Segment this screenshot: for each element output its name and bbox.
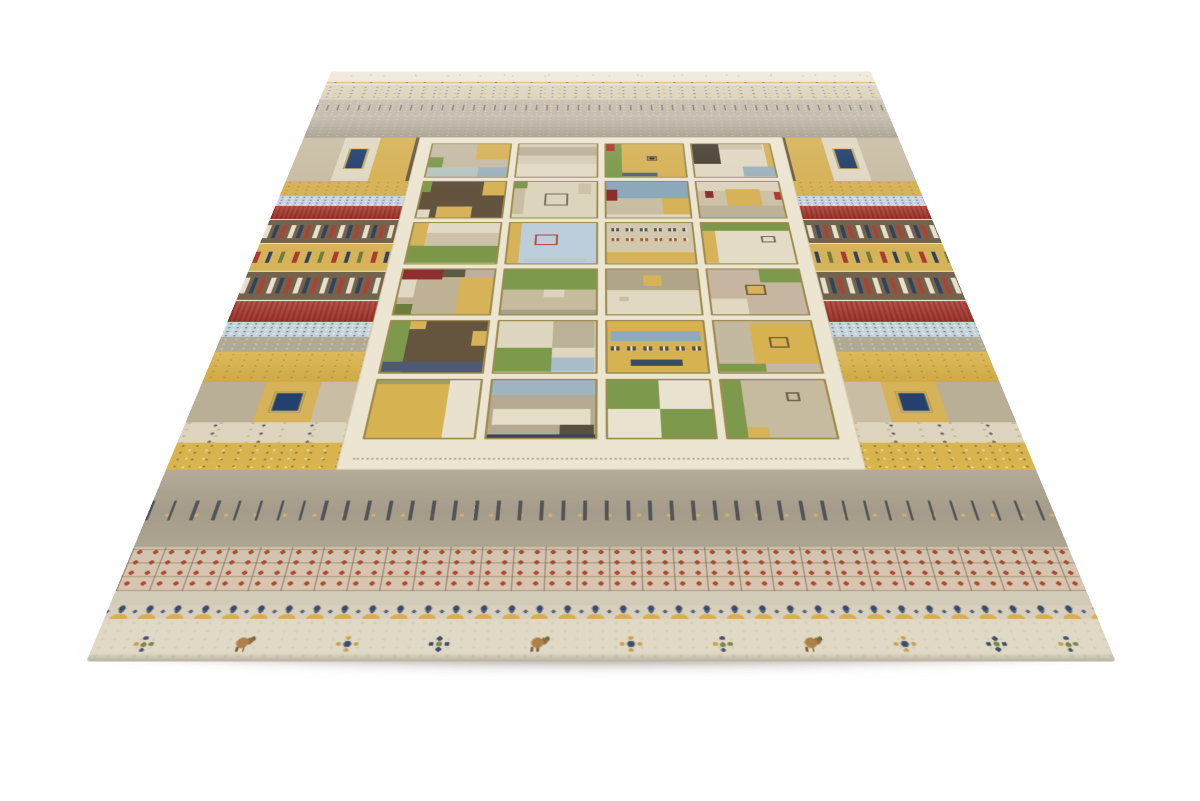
patch (700, 206, 786, 218)
patch (435, 206, 472, 217)
patch (607, 409, 661, 438)
patch (719, 363, 767, 371)
kilim-square-motif (896, 391, 933, 412)
rug-grid-cell (700, 222, 799, 264)
patch (402, 269, 444, 279)
patch (406, 246, 498, 263)
patch (606, 214, 691, 217)
patch (718, 144, 762, 150)
patch (607, 380, 660, 409)
rug-grid-cell (509, 181, 598, 219)
patch (785, 392, 801, 401)
patch (516, 164, 596, 177)
patch (578, 184, 591, 194)
patch (500, 310, 595, 315)
patch (725, 189, 763, 205)
rug-grid-cell (705, 268, 810, 315)
rug-band-light-plain (110, 591, 1093, 605)
rug-grid-cell (484, 378, 597, 439)
rug-grid-cell (498, 268, 597, 315)
patch (486, 434, 594, 438)
patch (428, 157, 444, 167)
patch (544, 193, 568, 205)
diamond-motif (334, 636, 360, 651)
kilim-square-motif (832, 148, 859, 169)
rug-grid-cell (424, 143, 512, 177)
rug-grid-cell (403, 222, 502, 264)
patch (606, 252, 696, 263)
patch (631, 359, 683, 365)
patch (410, 321, 427, 329)
rug-band-gray-fade (304, 115, 898, 138)
cross-motif (426, 636, 451, 651)
patch (514, 182, 528, 189)
patch (524, 258, 587, 262)
patch (416, 209, 430, 217)
diamond-motif (620, 636, 643, 651)
patch (650, 157, 655, 159)
patch (611, 331, 701, 341)
patch (455, 277, 494, 314)
rug-grid-cell (690, 143, 778, 177)
rug-band-beige-dots (320, 85, 883, 100)
patch (482, 182, 505, 196)
patch (512, 189, 526, 214)
rug-grid-cell (362, 378, 483, 439)
patch (606, 190, 618, 201)
patch (534, 235, 557, 245)
rug-grid-cell (712, 320, 824, 373)
patch (611, 226, 687, 233)
patch (769, 337, 791, 348)
plant-motif (1053, 636, 1082, 651)
patch (773, 192, 781, 200)
rug-band-flower-row (104, 605, 1098, 619)
product-photo-scene (0, 0, 1200, 801)
patch (543, 289, 564, 297)
rug-grid-cell (695, 181, 788, 219)
patch (471, 331, 487, 346)
patch (704, 191, 713, 197)
rug-band-bottom-cream (86, 619, 1115, 662)
rug-band-gray-dash (313, 100, 889, 115)
patch (643, 275, 662, 286)
rug-grid-cell (604, 181, 693, 219)
patch (660, 409, 716, 438)
rug-grid-cell (604, 222, 698, 264)
patch (606, 182, 689, 199)
rug-grid-cell (414, 181, 507, 219)
patch (662, 198, 690, 214)
patch (491, 380, 595, 396)
rug-band-pink-grid (116, 547, 1087, 591)
rug-patchwork-grid (362, 143, 839, 439)
patch (761, 236, 776, 242)
patch (744, 285, 766, 295)
patch-segment (936, 382, 1017, 423)
plant-motif (711, 636, 735, 651)
rug-grid-cell (514, 143, 598, 177)
rug-band-stick-row (134, 470, 1068, 547)
kilim-square-motif (269, 391, 306, 412)
deer-motif (801, 636, 827, 651)
rug-grid-cell (504, 222, 598, 264)
patch (606, 144, 615, 151)
rug-grid-cell (604, 143, 688, 177)
rug-band-edge-motif (328, 72, 874, 80)
rug-grid-cell (604, 268, 703, 315)
rug-grid-cell (719, 378, 840, 439)
rug-grid-cell (391, 268, 496, 315)
rug-grid-cell (605, 378, 718, 439)
cross-motif (983, 636, 1011, 651)
patch (494, 348, 552, 372)
patch (622, 173, 658, 177)
patch (492, 409, 590, 424)
patch (692, 144, 721, 164)
patch (475, 144, 510, 159)
rug-grid-cell (378, 320, 490, 373)
rug-grid-cell (605, 320, 711, 373)
deer-motif (232, 636, 259, 651)
patch (611, 236, 688, 242)
patch (711, 298, 749, 314)
patch (380, 361, 482, 372)
patch (620, 297, 629, 302)
deer-motif (528, 636, 552, 651)
diamond-motif (892, 636, 919, 651)
patch (477, 167, 507, 176)
patch (394, 304, 413, 314)
patch (518, 147, 596, 155)
patch (611, 344, 702, 353)
patch (758, 269, 801, 282)
patch (442, 269, 465, 277)
patch (742, 167, 776, 177)
patch (550, 357, 595, 372)
patch (747, 427, 770, 438)
patch (424, 233, 499, 245)
rug-grid-cell (491, 320, 597, 373)
patch (552, 321, 596, 348)
patch (702, 223, 789, 231)
rug-central-panel (335, 137, 866, 470)
patch (503, 269, 595, 289)
patch (658, 380, 712, 409)
plant-motif (130, 636, 159, 651)
rug (86, 72, 1115, 662)
kilim-square-motif (342, 148, 369, 169)
patch (378, 380, 450, 384)
